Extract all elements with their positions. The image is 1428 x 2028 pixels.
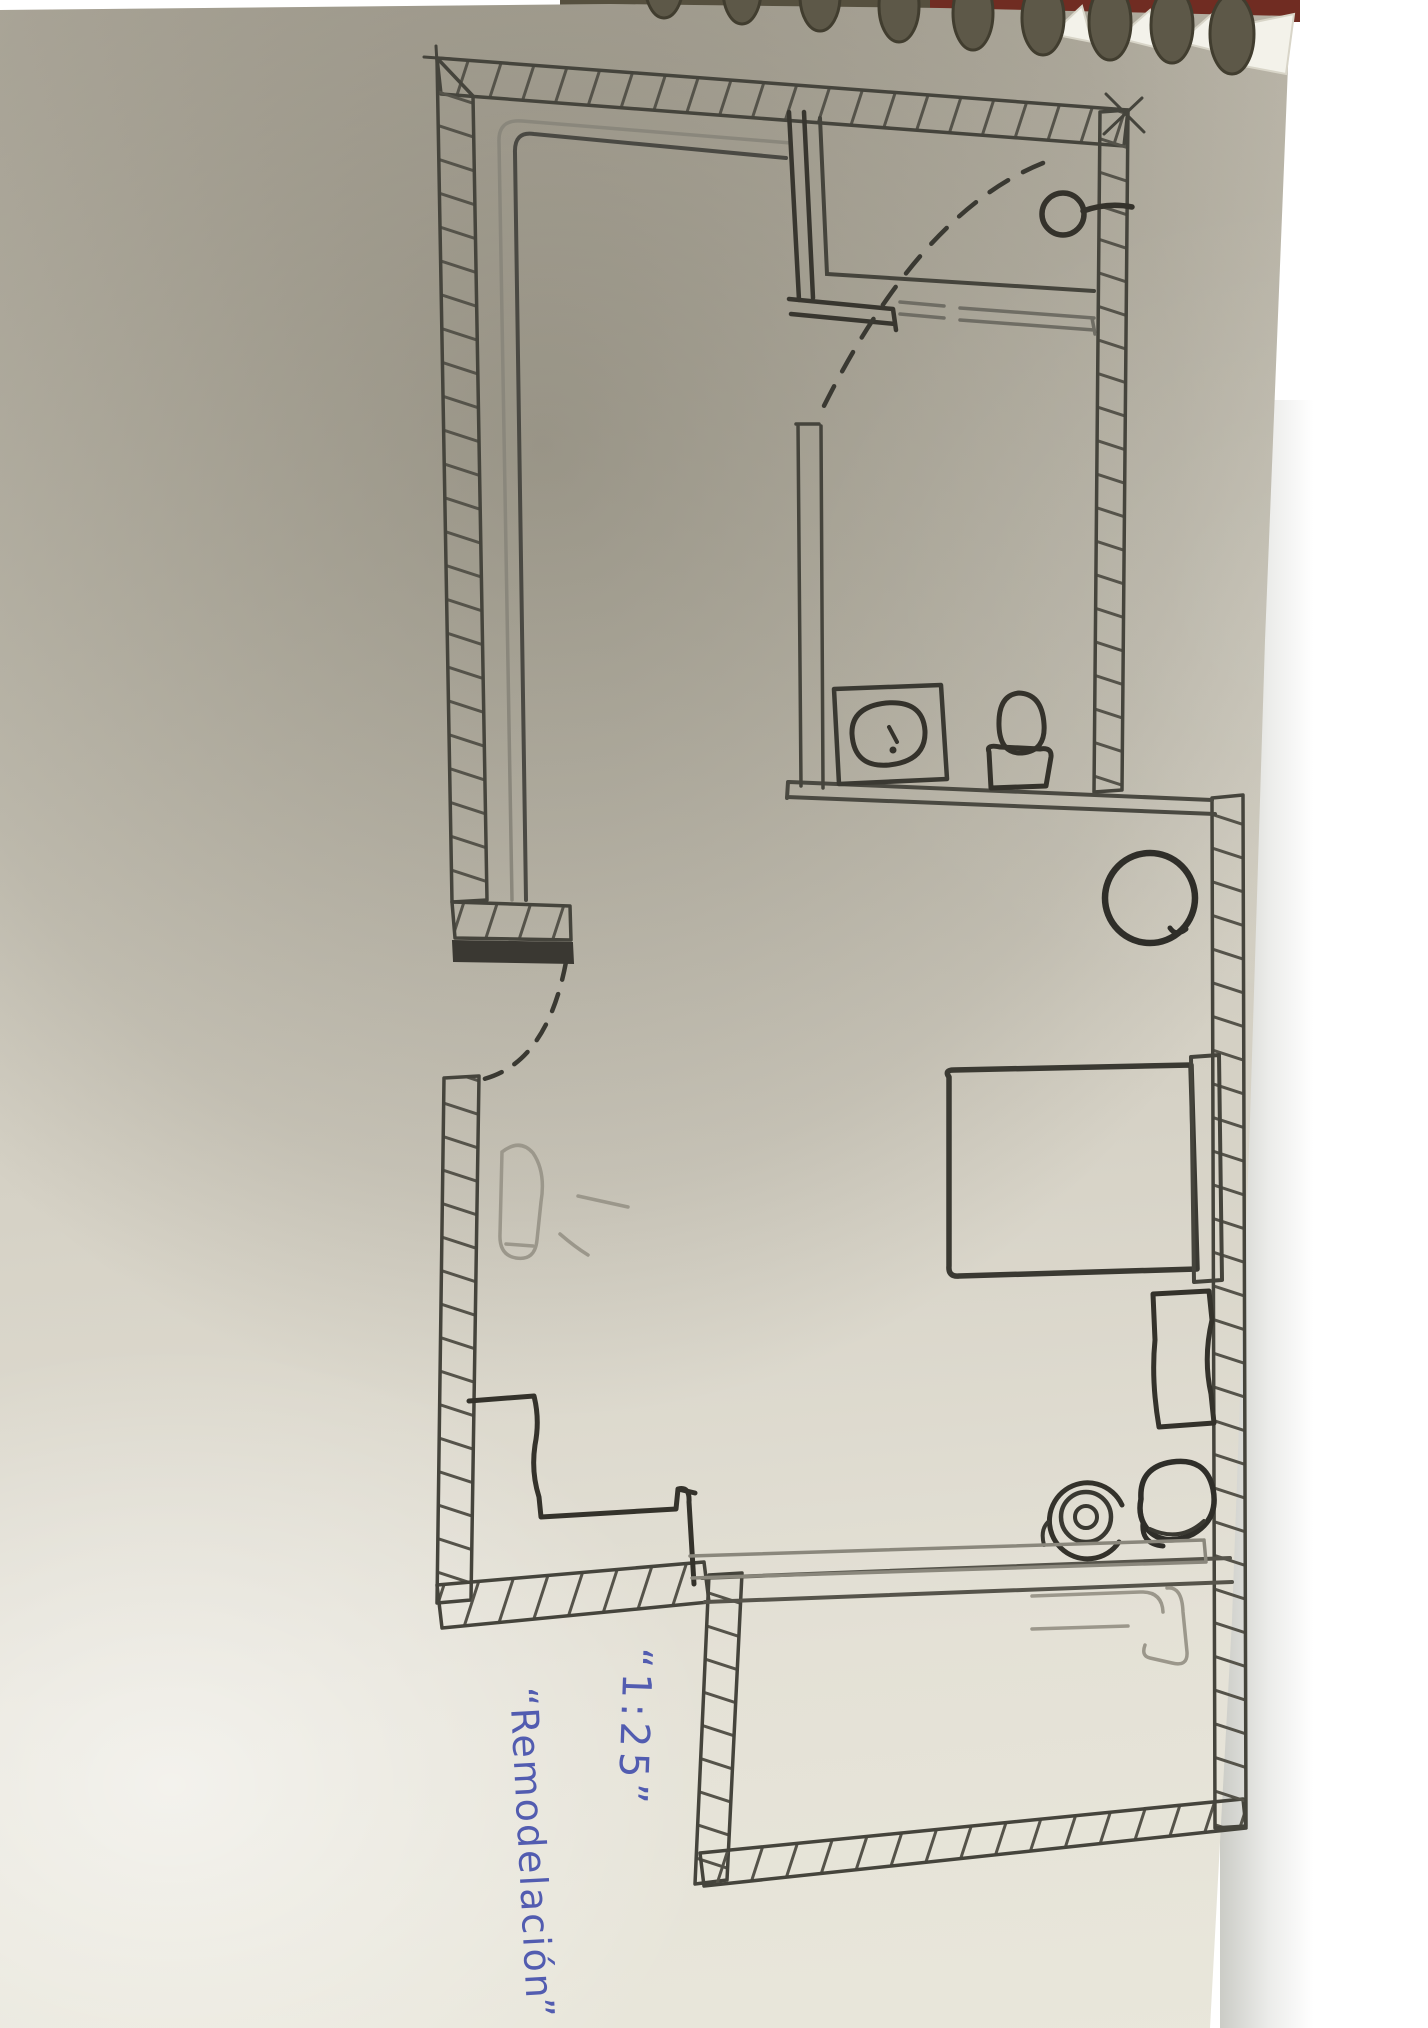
closet-lining-pencil bbox=[499, 121, 791, 900]
sink-drain-dot bbox=[890, 747, 897, 754]
pencil-stroke bbox=[578, 1196, 628, 1207]
wall-right-lower bbox=[1212, 795, 1246, 1828]
pencil-side-table bbox=[500, 1145, 542, 1258]
entry-door-leaf bbox=[453, 941, 573, 963]
toilet-bowl-icon bbox=[999, 693, 1044, 753]
furniture bbox=[947, 853, 1222, 1559]
nightstand bbox=[1153, 1291, 1214, 1427]
cup-fragment bbox=[1043, 1522, 1048, 1545]
bath-fixtures bbox=[834, 685, 1051, 788]
coils bbox=[645, 0, 1254, 74]
shower-front bbox=[789, 299, 896, 330]
coil-icon bbox=[645, 0, 683, 18]
main-bottom-wall-line bbox=[705, 1582, 1232, 1602]
tick bbox=[436, 46, 438, 80]
bathroom-door-swing bbox=[819, 163, 1043, 416]
coil-icon bbox=[723, 0, 761, 24]
coil-icon bbox=[953, 0, 993, 50]
shower-head-icon bbox=[1042, 193, 1084, 235]
doors bbox=[453, 163, 1043, 1079]
coil-icon bbox=[1210, 0, 1254, 74]
coil-icon bbox=[1022, 0, 1064, 55]
coil-icon bbox=[1089, 0, 1131, 60]
sink-basin-icon bbox=[852, 703, 925, 766]
coil-icon bbox=[800, 0, 840, 31]
l-shaped-counter bbox=[469, 1396, 695, 1584]
bed bbox=[947, 1065, 1197, 1276]
round-stool-hook bbox=[1170, 928, 1186, 933]
coil-icon bbox=[879, 0, 919, 42]
pencil-extension-shape bbox=[1032, 1626, 1128, 1629]
floor-plan-sketch bbox=[0, 0, 1428, 2028]
shower-left-wall bbox=[789, 112, 813, 300]
wall-entry-stub bbox=[452, 902, 571, 940]
sink-faucet-icon bbox=[889, 727, 897, 742]
wall-left-upper bbox=[437, 58, 487, 902]
pencil-side-table-line bbox=[506, 1244, 533, 1246]
coil-icon bbox=[1151, 0, 1193, 63]
bathroom-interior-wall bbox=[796, 424, 823, 788]
wall-extension-left bbox=[695, 1573, 742, 1884]
spiral-binding bbox=[645, 0, 1294, 74]
shower-inner-edge bbox=[820, 118, 1094, 291]
wall-extension-bottom bbox=[700, 1799, 1246, 1886]
wall-left-lower bbox=[437, 1076, 479, 1603]
pencil-extension-shape bbox=[1032, 1592, 1163, 1612]
walls bbox=[437, 58, 1246, 1886]
photo-of-sketch: “1:25” “Remodelación” bbox=[0, 0, 1428, 2028]
counter-edge-pencil bbox=[690, 1540, 1206, 1578]
shower-glass-partition bbox=[900, 302, 1095, 334]
shower bbox=[789, 112, 1132, 334]
wall-bottom-left bbox=[437, 1562, 709, 1628]
pencil-extension-shape bbox=[1144, 1588, 1187, 1664]
entry-door-swing bbox=[484, 962, 566, 1079]
scale-label: “1:25” bbox=[608, 1646, 660, 1809]
pencil-stroke bbox=[560, 1234, 588, 1255]
concentric-cup-mid bbox=[1061, 1492, 1111, 1542]
concentric-cup-inner bbox=[1075, 1506, 1097, 1528]
closet-lining-ink bbox=[515, 134, 786, 900]
wall-right-bathroom bbox=[1094, 110, 1128, 792]
